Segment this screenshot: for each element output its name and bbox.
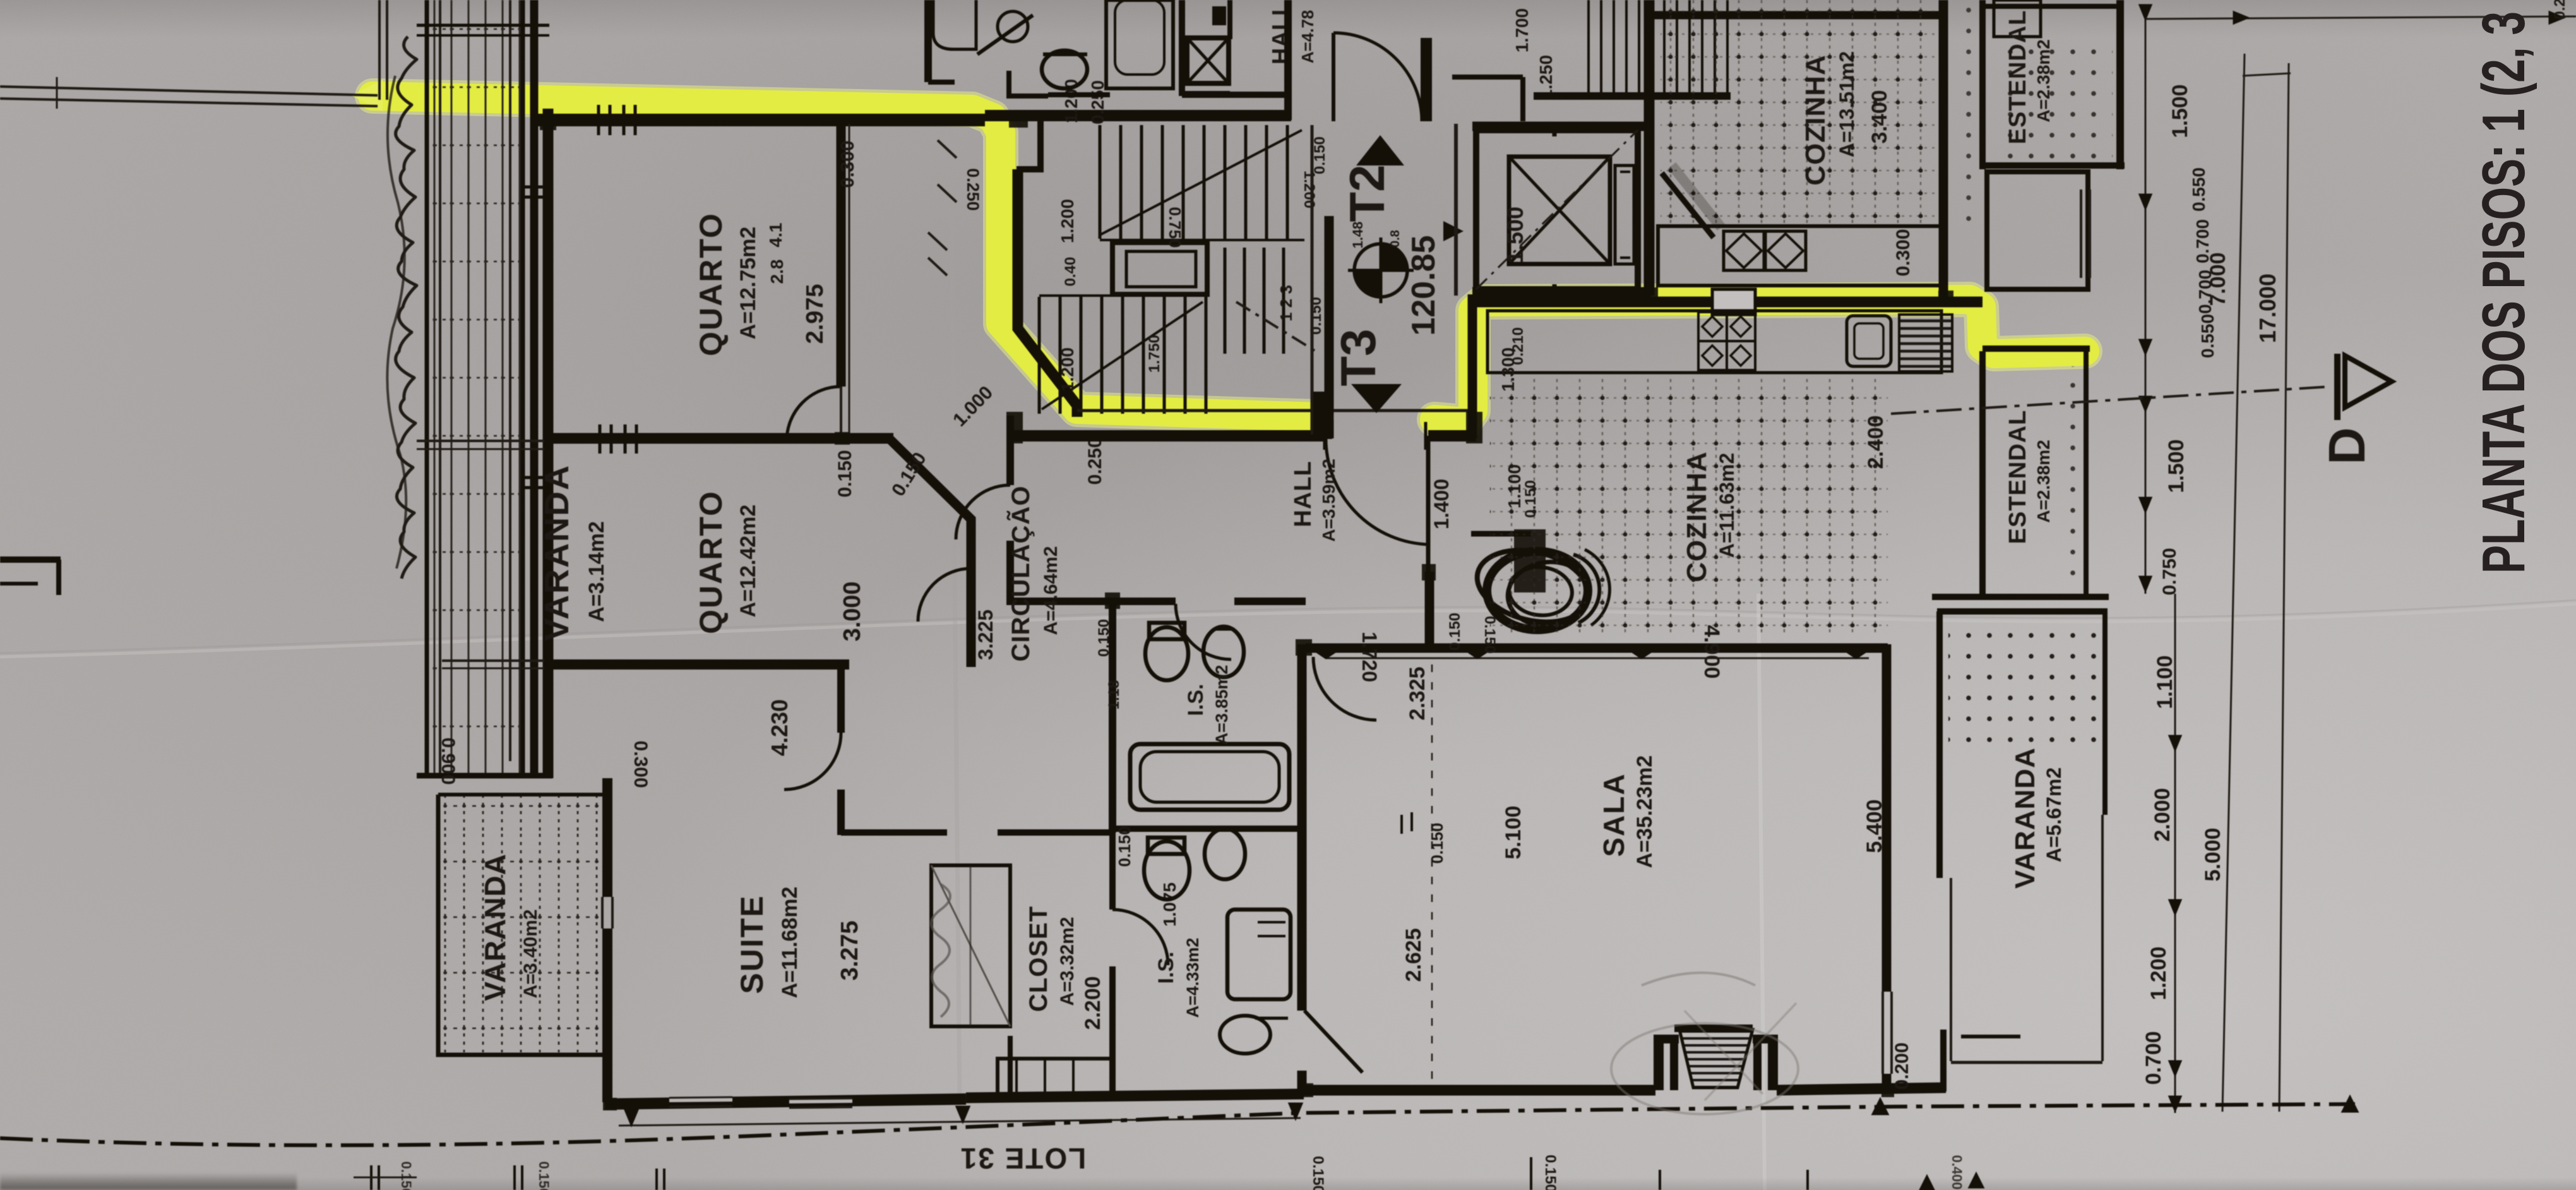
svg-text:0.300: 0.300 xyxy=(630,740,651,788)
svg-text:PLANTA DOS PISOS: 1 (2, 3: PLANTA DOS PISOS: 1 (2, 3 xyxy=(2470,11,2537,574)
svg-text:120.85: 120.85 xyxy=(1405,235,1442,335)
svg-text:1.18: 1.18 xyxy=(1106,680,1123,710)
svg-text:ESTENDAL: ESTENDAL xyxy=(2005,10,2031,145)
svg-text:1.200: 1.200 xyxy=(1058,199,1077,243)
svg-text:0.150: 0.150 xyxy=(1446,613,1464,651)
svg-text:0.400: 0.400 xyxy=(1949,1155,1965,1189)
svg-text:0.700: 0.700 xyxy=(2142,1031,2166,1085)
svg-text:0.2: 0.2 xyxy=(2551,0,2568,20)
svg-text:1.200: 1.200 xyxy=(2147,946,2171,1000)
svg-text:1 2 3: 1 2 3 xyxy=(1277,285,1296,322)
svg-text:5.100: 5.100 xyxy=(1501,805,1525,859)
svg-text:A=13.51m2: A=13.51m2 xyxy=(1835,51,1858,157)
svg-text:2.975: 2.975 xyxy=(802,284,828,344)
svg-text:3.000: 3.000 xyxy=(839,581,866,641)
svg-text:0.40: 0.40 xyxy=(1062,257,1079,287)
svg-text:0.150: 0.150 xyxy=(1481,616,1498,654)
svg-text:2.325: 2.325 xyxy=(1405,666,1429,720)
svg-text:17.000: 17.000 xyxy=(2255,273,2281,343)
svg-text:0.210: 0.210 xyxy=(1510,327,1527,365)
svg-text:7.000: 7.000 xyxy=(2206,252,2230,306)
svg-text:I.S.: I.S. xyxy=(1184,683,1208,716)
svg-text:VARANDA: VARANDA xyxy=(2010,747,2041,889)
svg-text:1.720: 1.720 xyxy=(1358,632,1381,682)
svg-text:I.S.: I.S. xyxy=(1154,951,1178,983)
svg-text:COZINHA: COZINHA xyxy=(1800,54,1831,185)
svg-text:A=12.42m2: A=12.42m2 xyxy=(736,505,760,618)
svg-text:1.400: 1.400 xyxy=(1430,479,1453,529)
svg-text:0.750: 0.750 xyxy=(2159,548,2180,595)
svg-text:A=3.32m2: A=3.32m2 xyxy=(1057,917,1078,1006)
svg-text:COZINHA: COZINHA xyxy=(1681,451,1712,582)
svg-text:A=2.38m2: A=2.38m2 xyxy=(2034,440,2053,523)
svg-text:0.150: 0.150 xyxy=(1311,136,1328,174)
svg-text:1.500: 1.500 xyxy=(2168,84,2192,138)
svg-text:4.900: 4.900 xyxy=(1700,625,1724,678)
svg-text:1.100: 1.100 xyxy=(2153,655,2177,709)
svg-text:A=3.40m2: A=3.40m2 xyxy=(520,910,541,999)
svg-text:1.200: 1.200 xyxy=(1301,171,1318,208)
svg-text:A=11.63m2: A=11.63m2 xyxy=(1715,453,1738,558)
svg-text:1.48: 1.48 xyxy=(1350,222,1366,249)
svg-text:0.300: 0.300 xyxy=(1893,229,1914,276)
svg-text:0.750: 0.750 xyxy=(1166,207,1184,248)
svg-text:0.150: 0.150 xyxy=(398,1161,414,1190)
svg-text:0.8: 0.8 xyxy=(1388,230,1402,248)
svg-text:1.100: 1.100 xyxy=(1505,464,1524,508)
svg-text:CLOSET: CLOSET xyxy=(1025,906,1052,1012)
svg-text:3.275: 3.275 xyxy=(837,920,863,980)
svg-text:A=4.78: A=4.78 xyxy=(1298,10,1317,64)
svg-text:0.150: 0.150 xyxy=(1308,297,1325,335)
svg-text:SUITE: SUITE xyxy=(734,894,770,994)
svg-text:ESTENDAL: ESTENDAL xyxy=(2005,410,2031,544)
svg-text:A=3.85m2: A=3.85m2 xyxy=(1212,665,1231,745)
svg-text:3.225: 3.225 xyxy=(974,610,997,660)
svg-text:CIRCULAÇÃO: CIRCULAÇÃO xyxy=(1006,486,1035,662)
svg-text:0.150: 0.150 xyxy=(1428,822,1446,863)
svg-text:2.8: 2.8 xyxy=(767,260,787,284)
svg-text:2.000: 2.000 xyxy=(2150,788,2174,841)
svg-text:T3: T3 xyxy=(1330,328,1386,386)
svg-text:0.150: 0.150 xyxy=(1115,826,1134,867)
svg-text:3.400: 3.400 xyxy=(1868,90,1892,143)
svg-text:HALL: HALL xyxy=(1290,460,1316,527)
svg-text:QUARTO: QUARTO xyxy=(693,212,729,356)
svg-text:0.550: 0.550 xyxy=(2189,167,2209,212)
svg-text:0.150: 0.150 xyxy=(1309,1156,1327,1190)
svg-text:0.150: 0.150 xyxy=(1095,619,1112,657)
svg-text:A=5.67m2: A=5.67m2 xyxy=(2042,767,2065,862)
svg-text:QUARTO: QUARTO xyxy=(693,490,729,634)
svg-text:1.075: 1.075 xyxy=(1160,882,1179,927)
svg-text:5.400: 5.400 xyxy=(1863,799,1887,853)
svg-text:0.550: 0.550 xyxy=(2198,314,2217,358)
svg-text:2.400: 2.400 xyxy=(1864,415,1888,469)
svg-text:0.250: 0.250 xyxy=(963,168,982,211)
svg-text:2.200: 2.200 xyxy=(1081,976,1105,1030)
svg-text:T2: T2 xyxy=(1339,164,1395,222)
svg-text:1.750: 1.750 xyxy=(1146,335,1163,373)
svg-text:VARANDA: VARANDA xyxy=(479,853,511,1001)
svg-text:A=11.68m2: A=11.68m2 xyxy=(778,887,802,999)
svg-text:0.150: 0.150 xyxy=(835,450,856,497)
svg-text:2.625: 2.625 xyxy=(1402,928,1426,982)
svg-text:5.000: 5.000 xyxy=(2201,827,2225,881)
svg-text:SALA: SALA xyxy=(1597,772,1630,856)
svg-text:0.200: 0.200 xyxy=(1892,1042,1912,1090)
svg-text:A=3.14m2: A=3.14m2 xyxy=(585,521,609,622)
svg-text:1.500: 1.500 xyxy=(1502,207,1528,263)
svg-text:0.150: 0.150 xyxy=(1522,480,1539,518)
svg-text:A=4.64m2: A=4.64m2 xyxy=(1041,546,1061,635)
svg-text:1.700: 1.700 xyxy=(1512,8,1532,52)
svg-text:VARANDA: VARANDA xyxy=(538,464,576,641)
svg-text:0.300: 0.300 xyxy=(837,140,858,188)
svg-text:1.200: 1.200 xyxy=(1058,347,1077,392)
svg-text:0.150: 0.150 xyxy=(1542,1155,1559,1190)
svg-text:A=4.33m2: A=4.33m2 xyxy=(1183,938,1202,1018)
svg-text:0.900: 0.900 xyxy=(438,737,458,784)
svg-text:A=35.23m2: A=35.23m2 xyxy=(1633,755,1657,868)
svg-text:4.230: 4.230 xyxy=(766,699,792,756)
svg-text:0.250: 0.250 xyxy=(1085,437,1106,484)
svg-text:1.500: 1.500 xyxy=(2164,439,2188,493)
svg-text:4.1: 4.1 xyxy=(766,223,785,248)
svg-text:A=12.75m2: A=12.75m2 xyxy=(736,227,760,340)
svg-text:A=3.59m2: A=3.59m2 xyxy=(1319,459,1339,542)
svg-text:D: D xyxy=(2318,427,2376,464)
svg-text:LOTE 31: LOTE 31 xyxy=(960,1142,1087,1175)
svg-text:0.150: 0.150 xyxy=(536,1161,552,1190)
svg-text:A=2.38m2: A=2.38m2 xyxy=(2034,39,2053,123)
